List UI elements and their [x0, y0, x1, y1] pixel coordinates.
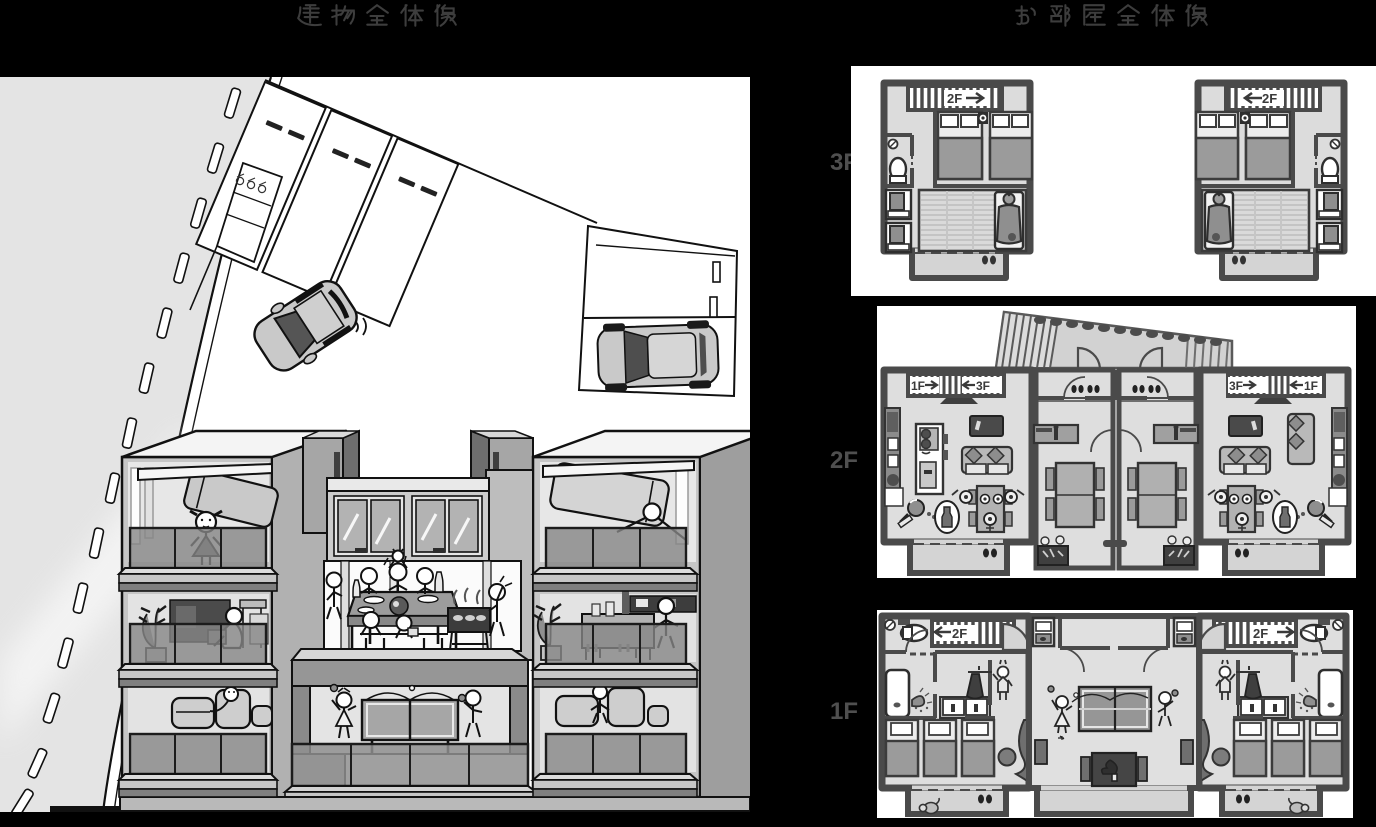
svg-text:3F: 3F — [976, 379, 990, 393]
svg-text:1F: 1F — [1304, 379, 1318, 393]
svg-text:2F: 2F — [1262, 91, 1277, 106]
svg-text:2F: 2F — [952, 626, 967, 641]
svg-text:1F: 1F — [911, 379, 925, 393]
svg-text:2F: 2F — [1253, 626, 1268, 641]
svg-text:3F: 3F — [1229, 379, 1243, 393]
svg-text:2F: 2F — [947, 91, 962, 106]
